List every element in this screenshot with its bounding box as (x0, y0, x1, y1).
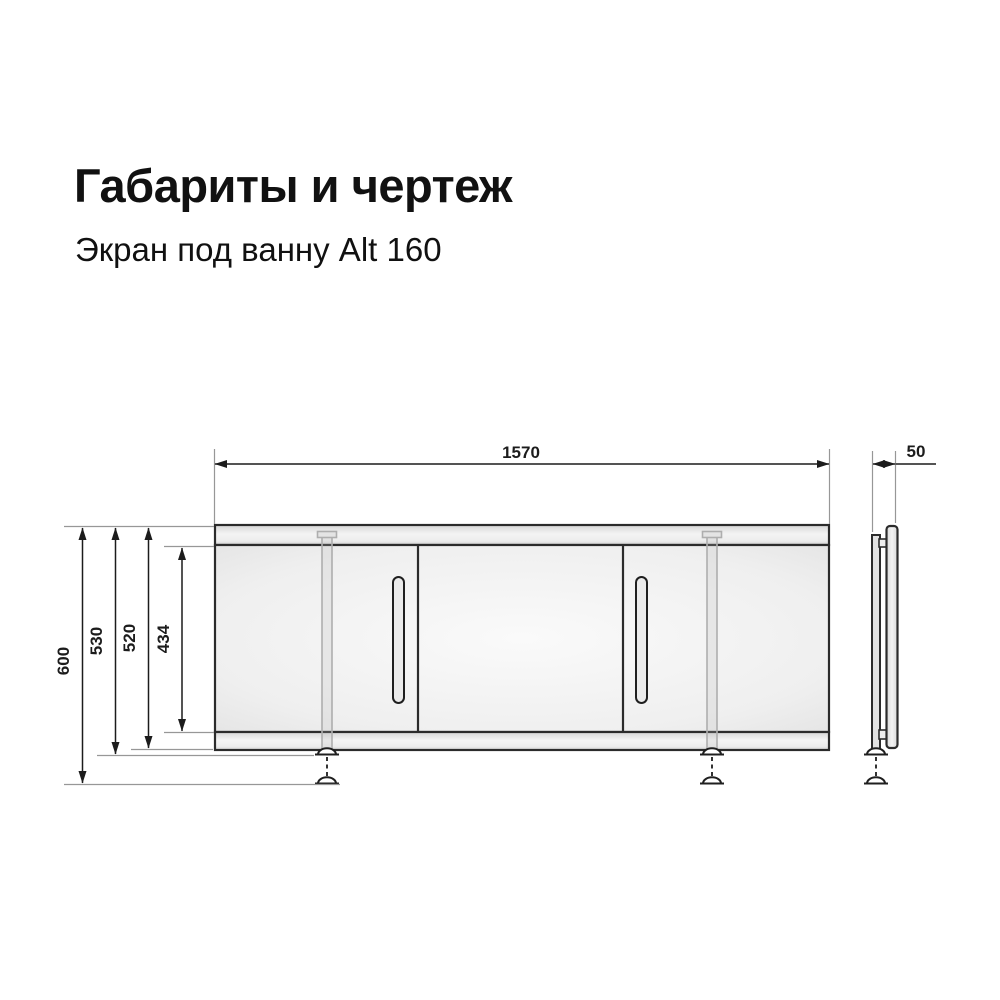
dim-label-height-overall: 600 (54, 647, 73, 675)
side-view (864, 526, 898, 784)
page: Габариты и чертеж Экран под ванну Alt 16… (0, 0, 1000, 1000)
dim-label-depth: 50 (907, 442, 926, 461)
front-bottom-rail (215, 732, 829, 750)
front-panels (215, 545, 829, 732)
dim-label-door-height: 434 (154, 624, 173, 653)
front-view (215, 525, 829, 784)
dim-label-height-foot-base: 530 (87, 627, 106, 655)
side-panel (887, 526, 898, 748)
dim-label-width: 1570 (502, 443, 540, 462)
door-handle-left (393, 577, 404, 703)
dimension-drawing: 1570 600 530 520 434 50 (0, 0, 1000, 1000)
foot-right (700, 748, 724, 783)
side-leg-strip (872, 535, 880, 751)
foot-left (315, 748, 339, 783)
dim-label-height-frame: 520 (120, 624, 139, 652)
front-top-rail (215, 525, 829, 545)
door-handle-right (636, 577, 647, 703)
side-foot (864, 748, 888, 783)
